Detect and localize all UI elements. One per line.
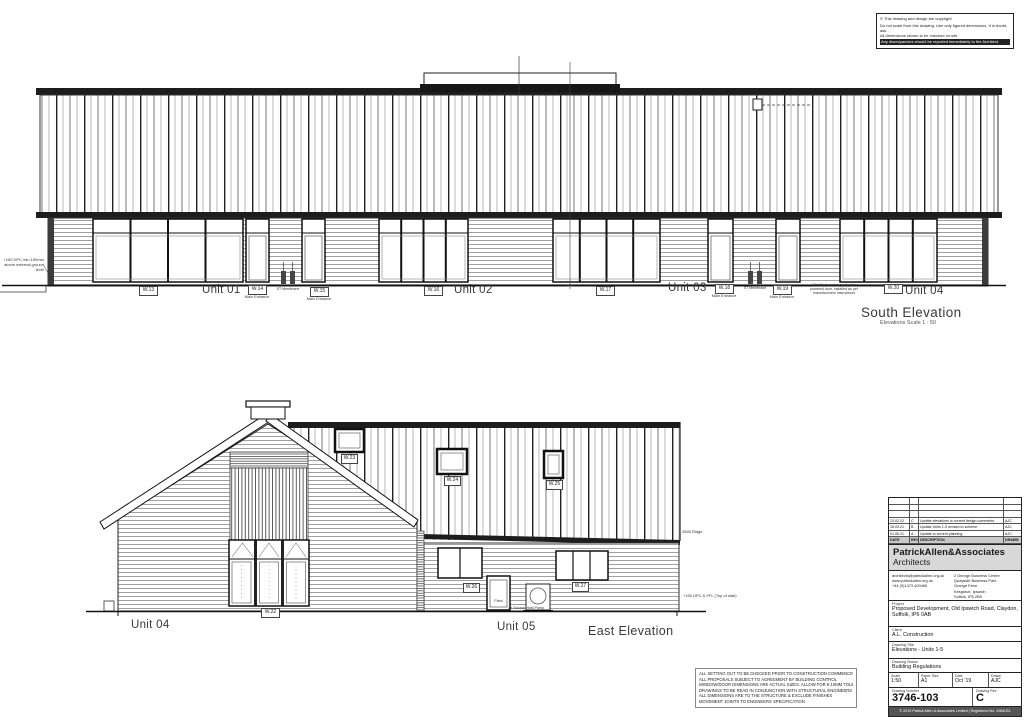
firm-address-line: Suffolk, IP5 2BX: [954, 594, 1024, 599]
rev-header-desc: DESCRIPTION: [919, 537, 1004, 544]
scale-row: Scale 1:50 Paper Size A1 Date Oct '19 Dr…: [889, 673, 1021, 688]
date-value: Oct '19: [955, 678, 986, 684]
revision-table: 23.02.22 C Update elevations to current …: [889, 498, 1021, 545]
site-note-line: WINDOW/DOOR DIMENSIONS ARE ACTUAL SIZES.…: [699, 682, 853, 688]
membrane-note: ST Membrane: [739, 286, 771, 291]
heat-pump-note: Air Source Heat Pump: [496, 606, 556, 611]
copyright-line: © This drawing and design are copyright: [880, 16, 1010, 21]
title-block-footer: © 2019 Patrick Allen & Associates Limite…: [889, 707, 1021, 716]
window-tag-w27: W.27: [572, 582, 589, 592]
copyright-line: All dimensions shown to be checked on si…: [880, 34, 1010, 39]
client-value: A.L. Construction: [889, 632, 1021, 639]
membrane-note: ST Membrane: [272, 287, 304, 292]
firm-phone: +44 (0)1473 400460: [892, 583, 954, 588]
south-elevation-title: South Elevation: [861, 305, 962, 320]
site-note-line: MOVEMENT JOINTS TO ENGINEERS SPECIFICATI…: [699, 699, 853, 705]
window-tag-w14: W.14: [248, 285, 267, 295]
drawing-number-cell: Drawing Number 3746-103: [889, 688, 973, 706]
drawn-cell: Drawn AJC: [989, 673, 1023, 687]
window-tag-w26: W.26: [463, 583, 480, 593]
elevation-linework: [0, 0, 1024, 724]
window-tag-w15: W.15: [310, 287, 329, 297]
east-elevation-drawing: [86, 401, 706, 616]
window-tag-w13: W.13: [139, 286, 158, 296]
south-unit-01-label: Unit 01: [202, 284, 241, 296]
contact-left-column: architects@patrickallen.org.uk www.patri…: [892, 573, 954, 600]
east-unit-04-label: Unit 04: [131, 619, 170, 631]
window-tag-w16: W.16: [424, 286, 443, 296]
date-cell: Date Oct '19: [953, 673, 989, 687]
firm-subtitle: Architects: [893, 558, 1017, 567]
paper-cell: Paper Size A1: [919, 673, 953, 687]
ridge-note: 2845 Ridge: [682, 530, 722, 535]
south-unit-04-label: Unit 04: [905, 285, 944, 297]
client-section: Client A.L. Construction: [889, 627, 1021, 642]
main-entrance-label: Main Entrance: [709, 294, 739, 299]
disabled-access-note: Disabled access push pad powered door, i…: [808, 283, 860, 296]
south-unit-02-label: Unit 02: [454, 284, 493, 296]
east-elevation-title: East Elevation: [588, 624, 674, 638]
south-unit-03-label: Unit 03: [668, 282, 707, 294]
window-tag-w24: W.24: [444, 476, 461, 486]
title-block: 23.02.22 C Update elevations to current …: [888, 497, 1022, 717]
copyright-note-box: © This drawing and design are copyright …: [876, 13, 1014, 49]
rev-header-date: DATE: [889, 537, 910, 544]
scale-cell: Scale 1:50: [889, 673, 919, 687]
drawing-sheet: © This drawing and design are copyright …: [0, 0, 1024, 724]
project-value: Proposed Development, Old Ipswich Road, …: [889, 606, 1021, 619]
drawing-rev-cell: Drawing Rev C: [973, 688, 1023, 706]
window-tag-w18: W.18: [715, 284, 734, 294]
window-tag-w25: W.25: [546, 480, 563, 490]
drawing-status-section: Drawing Status Building Regulations: [889, 659, 1021, 673]
site-notes-block: ALL SETTING OUT TO BE CHECKED PRIOR TO C…: [695, 668, 857, 708]
site-note-line: ALL SETTING OUT TO BE CHECKED PRIOR TO C…: [699, 671, 853, 677]
south-dpc-note: +150 DPC min 150mm above external ground…: [2, 258, 44, 272]
drawing-number-row: Drawing Number 3746-103 Drawing Rev C: [889, 688, 1021, 707]
firm-contact: architects@patrickallen.org.uk www.patri…: [889, 571, 1021, 601]
south-elevation-subtitle: Elevations Scale 1 : 50: [880, 320, 936, 326]
scale-value: 1:50: [891, 678, 916, 684]
drawing-title-value: Elevations - Units 1-5: [889, 647, 1021, 654]
drawing-rev-value: C: [976, 693, 1020, 704]
copyright-line-highlight: Any discrepancies should be reported imm…: [880, 39, 1010, 45]
contact-right-column: 2 George Business Centre Quayside Busine…: [954, 573, 1024, 600]
project-section: Project Proposed Development, Old Ipswic…: [889, 601, 1021, 627]
main-entrance-label: Main Entrance: [304, 297, 334, 302]
drawing-number-value: 3746-103: [892, 693, 969, 704]
paper-value: A1: [921, 678, 950, 684]
firm-logo-band: PatrickAllen&Associates Architects: [889, 545, 1021, 571]
main-entrance-label: Main Entrance: [242, 295, 272, 300]
east-dpc-note: +150 DPC & FFL (Top of slab): [683, 594, 745, 599]
window-tag-w19: W.19: [773, 285, 792, 295]
south-elevation-drawing: [0, 56, 1006, 292]
drawing-status-value: Building Regulations: [889, 664, 1021, 671]
drawn-value: AJC: [991, 678, 1021, 684]
window-tag-w22: W.22: [261, 608, 280, 618]
window-tag-w17: W.17: [596, 286, 615, 296]
east-unit-05-label: Unit 05: [497, 621, 536, 633]
drawing-title-section: Drawing Title Elevations - Units 1-5: [889, 642, 1021, 659]
firm-name: PatrickAllen&Associates: [893, 548, 1017, 558]
rev-header-rev: REV: [910, 537, 919, 544]
main-entrance-label: Main Entrance: [767, 295, 797, 300]
window-tag-w20: W.20: [884, 284, 903, 294]
window-tag-w23: W.23: [341, 454, 358, 464]
plant-door-note: Plant: [486, 599, 511, 604]
rev-header-by: DRAWN: [1004, 537, 1021, 544]
